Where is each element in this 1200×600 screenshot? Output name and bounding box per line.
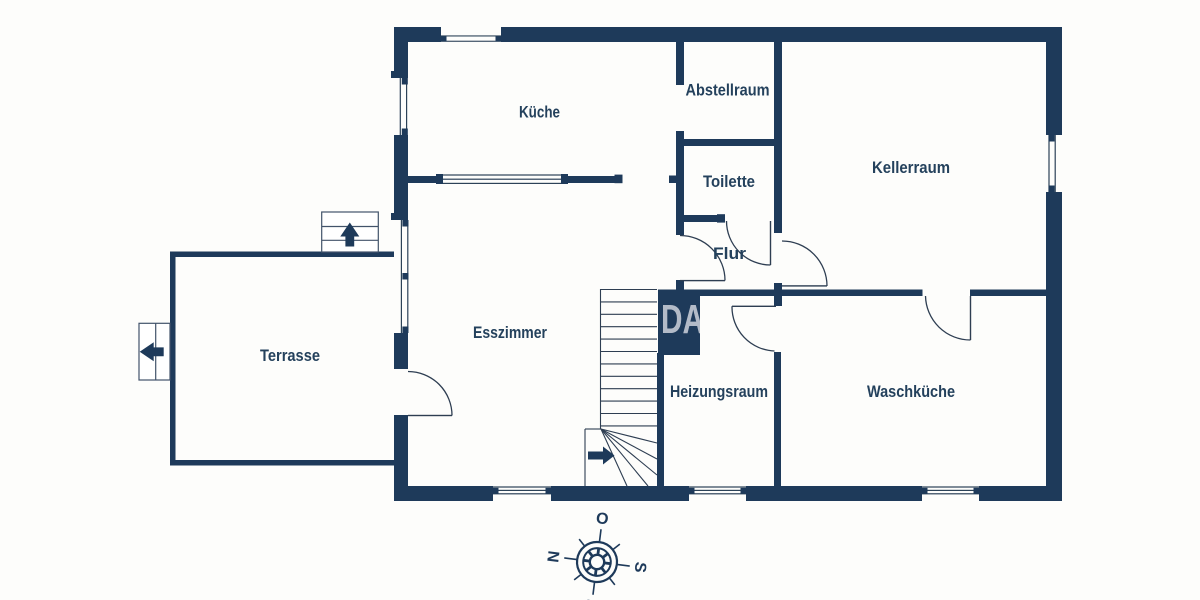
svg-text:DA: DA bbox=[661, 296, 704, 342]
svg-text:O: O bbox=[595, 510, 609, 528]
svg-text:Heizungsraum: Heizungsraum bbox=[670, 383, 768, 401]
svg-text:Waschküche: Waschküche bbox=[867, 383, 955, 401]
svg-text:Terrasse: Terrasse bbox=[260, 347, 320, 365]
svg-text:Küche: Küche bbox=[519, 104, 560, 122]
svg-text:Flur: Flur bbox=[713, 245, 747, 263]
svg-text:Esszimmer: Esszimmer bbox=[473, 324, 547, 342]
svg-text:Toilette: Toilette bbox=[703, 173, 755, 191]
svg-text:Kellerraum: Kellerraum bbox=[872, 159, 950, 177]
svg-text:Abstellraum: Abstellraum bbox=[686, 82, 770, 100]
svg-text:N: N bbox=[545, 550, 563, 564]
